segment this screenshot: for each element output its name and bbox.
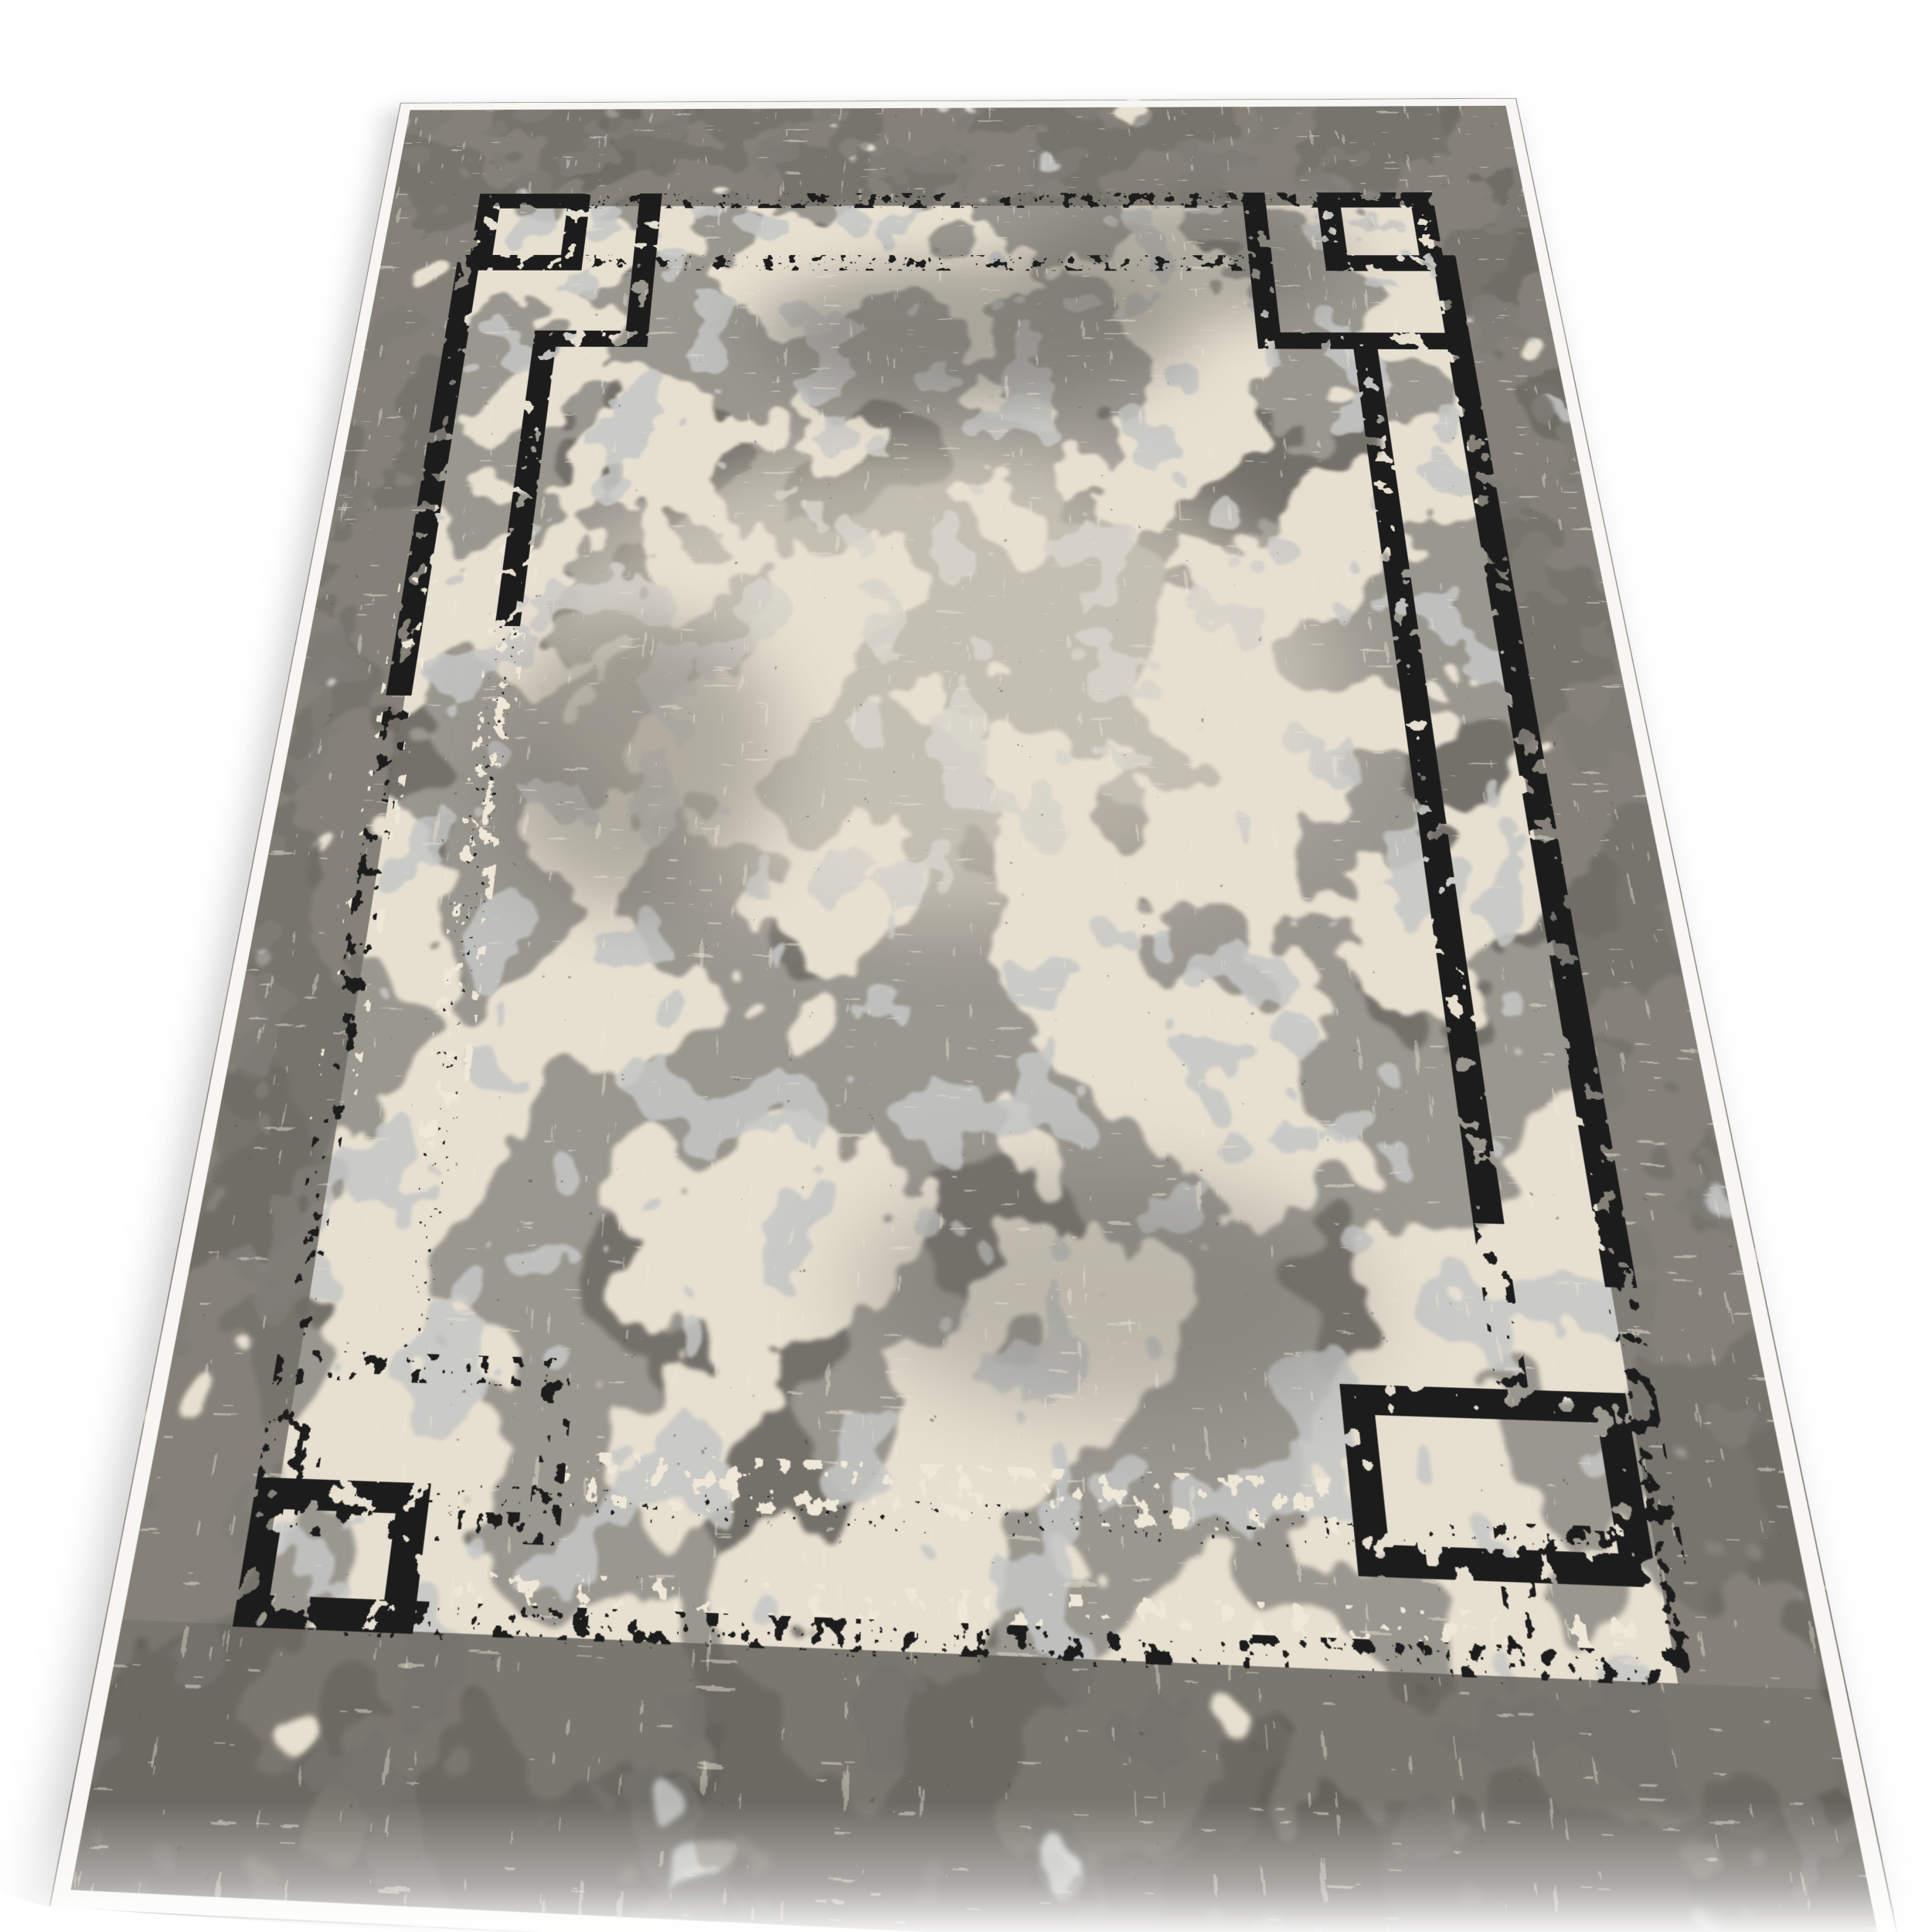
border-top-inner-speckle <box>571 263 1260 264</box>
rug-photo <box>49 98 1912 1932</box>
product-photo-scene <box>0 0 1932 1932</box>
bottom-frame-fade <box>0 1801 1932 1932</box>
border-top-outer-speckle <box>579 200 1422 201</box>
rug-canvas <box>49 98 1912 1932</box>
